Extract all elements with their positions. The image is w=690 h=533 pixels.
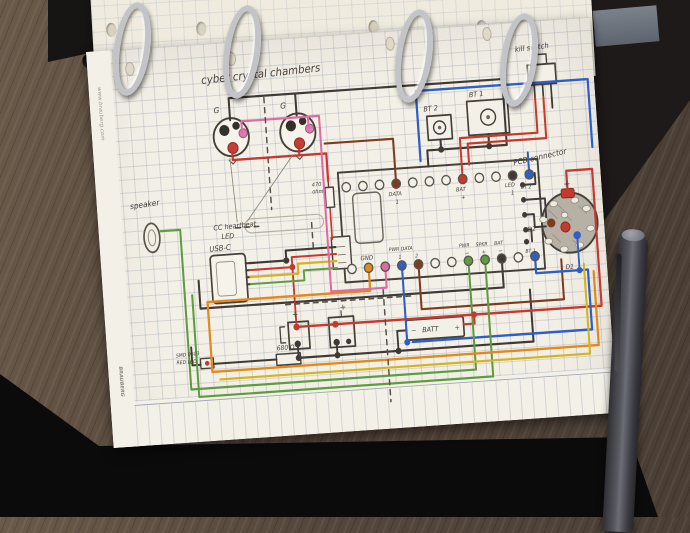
terminal-spkr-plus-label: + [482, 249, 487, 256]
wire-dark-8 [552, 97, 553, 108]
junction-dot [576, 267, 582, 274]
schematic-drawing: cyber crystal chambersGGCC heartbeatLEDs… [86, 17, 617, 448]
board-terminal-bottom [364, 263, 373, 273]
wire-dark-1 [295, 94, 297, 116]
terminal-data-label: DATA [388, 191, 402, 198]
terminal-gnd-label: GND [360, 255, 374, 262]
terminal-bt2-label: BT 2 [521, 184, 532, 191]
speaker-label: speaker [129, 198, 160, 212]
terminal-1-label: 1 [398, 254, 401, 260]
wire-brown-28 [419, 256, 564, 309]
board-pin [524, 239, 530, 245]
board-pin [521, 197, 527, 203]
board-terminal-top [425, 176, 434, 186]
wire-dark-14 [214, 359, 277, 363]
board-left-connector [331, 236, 352, 269]
punch-hole [196, 22, 207, 37]
terminal-pwrdata-label: PWR DATA [389, 246, 413, 254]
schematic-sheet: cyber crystal chambersGGCC heartbeatLEDs… [86, 17, 617, 448]
junction-dot [289, 264, 295, 271]
title: cyber crystal chambers [201, 62, 322, 87]
board-terminal-bottom [431, 258, 440, 268]
board-terminal-top [408, 178, 417, 188]
terminal-bat-label: BAT [456, 187, 467, 194]
d1-label: D1 [565, 263, 574, 271]
d2-label: D2 [527, 226, 536, 234]
board-terminal-bottom [447, 257, 456, 267]
bt2-label: BT 2 [423, 104, 438, 114]
board-terminal-bottom [514, 252, 523, 262]
board-terminal-bottom [381, 262, 390, 272]
wire-pencil-47 [230, 158, 237, 222]
usb-c-label: USB-C [209, 242, 232, 254]
wire-pencil-48 [243, 155, 297, 221]
junction-dot [395, 348, 401, 355]
board-terminal-bottom [497, 254, 506, 264]
switch1-plus-label: + [292, 310, 299, 320]
terminal-led-1-label: 1 [511, 190, 515, 196]
junction-dot [334, 352, 340, 359]
terminal-pwr-minus-label: − [465, 251, 470, 258]
chamber1-g-label: G [213, 106, 219, 116]
resistor-470-label-1: 470 [312, 182, 323, 189]
board-terminal-top [508, 171, 517, 181]
board-pin [522, 212, 528, 218]
board-terminal-top [475, 173, 484, 183]
board-terminal-bottom [414, 259, 423, 269]
junction-dot [438, 146, 444, 153]
cc-heartbeat-led-label-2: LED [221, 232, 234, 241]
speaker-symbol [143, 223, 161, 253]
terminal-data-1-label: 1 [395, 199, 399, 205]
board-inner-module [352, 192, 383, 244]
board-terminal-top [342, 182, 351, 192]
terminal-bat-plus-label: + [461, 195, 466, 202]
pen-clip [615, 253, 622, 371]
board-terminal-top [442, 175, 451, 185]
pcb-plus-label: + [563, 179, 571, 190]
chamber2-g-label: G [280, 101, 286, 111]
battery-minus-label: − [411, 326, 417, 335]
pcb-red-pad [560, 222, 570, 233]
terminal-pwr-label: PWR [459, 243, 470, 250]
board-terminal-bottom [481, 255, 490, 265]
terminal-bat-minus-label: − [498, 248, 503, 255]
wire-red-20 [330, 211, 332, 239]
terminal-led-label: LED [505, 182, 515, 189]
battery-label: BATT [422, 325, 440, 334]
battery-plus-label: + [454, 323, 460, 332]
resistor-680-label: 680 Ω [276, 344, 295, 353]
board-terminal-top [491, 172, 500, 182]
terminal-2-label: 2 [415, 253, 418, 259]
board-terminal-top [392, 179, 401, 189]
junction-dot [283, 257, 289, 264]
left-margin [86, 50, 138, 448]
board-terminal-top [375, 180, 384, 190]
switch-2 [328, 310, 355, 348]
wire-gray-dash-44 [312, 223, 314, 249]
usb-c-connector [210, 253, 252, 304]
terminal-bt1-label: BT 1 [525, 248, 536, 255]
bt1-label: BT 1 [468, 90, 483, 100]
terminal-spkr-label: SPKR [475, 241, 487, 248]
board-terminal-bottom [397, 261, 406, 271]
wire-gray-dash-42 [264, 98, 272, 210]
resistor-470-label-2: ohm [312, 189, 324, 196]
cc-heartbeat-led-label-1: CC heartbeat [213, 220, 257, 233]
junction-dot [486, 143, 492, 150]
punch-hole [106, 23, 117, 38]
pcb-connector-label: PCB connector [512, 146, 568, 167]
board-terminal-top [358, 181, 367, 191]
board-terminal-bottom [347, 264, 356, 274]
pcb-connector [538, 187, 600, 255]
bt2-holder [427, 115, 453, 141]
board-terminal-top [458, 174, 467, 184]
terminal-bat2-label: BAT [494, 240, 504, 247]
wire-brown-27 [325, 139, 396, 186]
wire-red-18 [299, 144, 300, 155]
pen-cap [621, 229, 645, 242]
board-terminal-top [525, 169, 534, 179]
switch2-plus-label: + [339, 302, 346, 312]
wire-pink-41 [308, 117, 309, 128]
board-terminal-bottom [464, 256, 473, 266]
wire-dark-0 [229, 79, 507, 164]
binder-tab [593, 5, 660, 46]
